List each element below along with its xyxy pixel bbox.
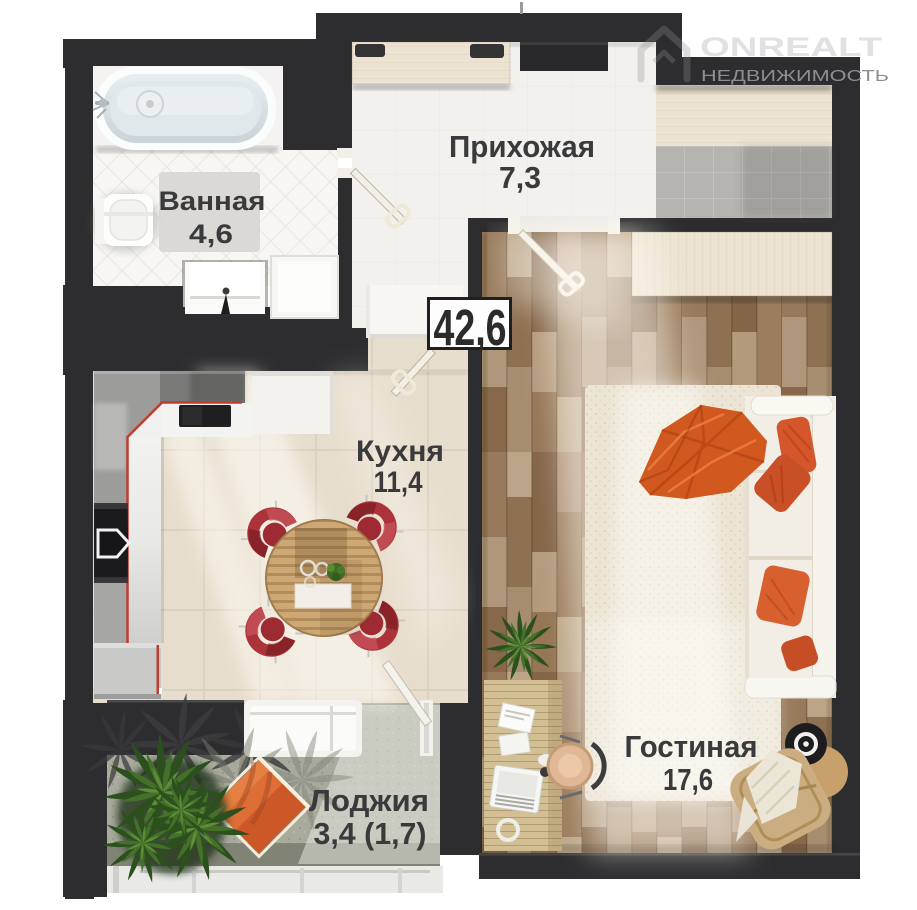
svg-text:ONREALT: ONREALT	[700, 32, 883, 62]
svg-text:42,6: 42,6	[434, 299, 507, 356]
svg-text:7,3: 7,3	[499, 160, 541, 195]
svg-text:Гостиная: Гостиная	[625, 729, 758, 764]
svg-text:4,6: 4,6	[189, 219, 233, 249]
svg-text:Прихожая: Прихожая	[449, 129, 595, 164]
svg-text:Лоджия: Лоджия	[309, 783, 429, 818]
svg-text:3,4 (1,7): 3,4 (1,7)	[314, 816, 427, 851]
svg-text:Кухня: Кухня	[356, 435, 444, 468]
svg-text:НЕДВИЖИМОСТЬ: НЕДВИЖИМОСТЬ	[701, 68, 889, 85]
svg-text:17,6: 17,6	[663, 762, 713, 797]
svg-text:Ванная: Ванная	[159, 186, 266, 216]
svg-text:11,4: 11,4	[374, 466, 423, 499]
